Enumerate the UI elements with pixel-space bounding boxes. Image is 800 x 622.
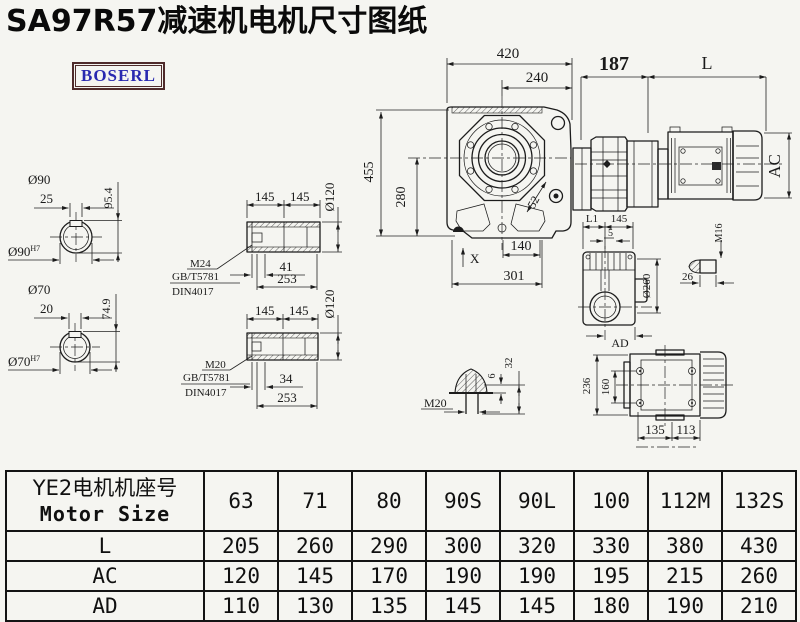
dim-side-l1: L1 [586, 213, 598, 225]
dim-shaft90-bore: Ø90H7 [8, 244, 40, 259]
header-motor-size: YE2电机机座号 Motor Size [6, 471, 204, 531]
dim-shaft90-key-height: 95.4 [101, 188, 115, 209]
shaft-section-70: Ø70 20 74.9 Ø70H7 [8, 282, 120, 374]
label-sleeve20-std1: GB/T5781 [183, 372, 230, 384]
table-row-AC: AC 120 145 170 190 190 195 215 260 [6, 561, 796, 591]
dim-shaft90-key-width: 25 [40, 191, 53, 206]
dim-front-motor-len: L [702, 53, 713, 73]
header-motor-size-en: Motor Size [7, 502, 203, 527]
row-label: AD [6, 591, 204, 621]
value-cell: 430 [722, 531, 796, 561]
dim-bolt-len: 32 [503, 358, 515, 369]
value-cell: 205 [204, 531, 278, 561]
dim-motor-ac: AC [765, 154, 784, 178]
value-cell: 300 [426, 531, 500, 561]
dim-front-height-inner: 280 [394, 187, 409, 208]
label-sleeve20-thread: M20 [205, 359, 226, 371]
dim-sleeve20-dia: Ø120 [322, 290, 337, 319]
dim-side-ad: AD [611, 336, 629, 350]
label-sleeve24-std2: DIN4017 [172, 286, 214, 298]
value-cell: 215 [648, 561, 722, 591]
value-cell: 290 [352, 531, 426, 561]
size-col-header: 100 [574, 471, 648, 531]
dim-side-boss-dia: Ø260 [641, 273, 653, 298]
dim-sleeve24-len-b: 145 [290, 189, 310, 204]
value-cell: 190 [500, 561, 574, 591]
size-col-header: 112M [648, 471, 722, 531]
label-sleeve20-std2: DIN4017 [185, 387, 227, 399]
header-motor-size-cn: YE2电机机座号 [7, 475, 203, 502]
dim-shaft70-dia: Ø70 [28, 282, 50, 297]
dimension-sheet: { "title": "SA97R57减速机电机尺寸图纸", "logo": {… [0, 0, 800, 613]
sleeve-detail-m20: 145 145 Ø120 M20 GB/T5781 DIN4017 34 253 [181, 290, 342, 409]
value-cell: 195 [574, 561, 648, 591]
brand-logo: BOSERL [72, 62, 165, 90]
value-cell: 260 [722, 561, 796, 591]
value-cell: 170 [352, 561, 426, 591]
label-front-foot-x: X [470, 251, 480, 266]
dim-front-flange: 52 [524, 194, 542, 211]
size-col-header: 132S [722, 471, 796, 531]
dim-side-len: 145 [611, 213, 628, 225]
value-cell: 120 [204, 561, 278, 591]
gearbox-side-view: L1 145 5 Ø260 AD M16 26 [578, 213, 734, 350]
page-title: SA97R57减速机电机尺寸图纸 [6, 0, 427, 40]
dim-rear-foot-b: 113 [676, 422, 695, 437]
dim-sleeve20-depth: 34 [280, 371, 294, 386]
value-cell: 210 [722, 591, 796, 621]
value-cell: 180 [574, 591, 648, 621]
dim-sleeve24-dia: Ø120 [322, 183, 337, 212]
motor-assembly: AC [573, 127, 792, 211]
dim-side-plug-len: 26 [682, 271, 694, 283]
value-cell: 380 [648, 531, 722, 561]
value-cell: 135 [352, 591, 426, 621]
gearbox-rear-view: 236 160 135 113 [581, 345, 734, 447]
size-col-header: 63 [204, 471, 278, 531]
dim-front-height: 455 [362, 162, 377, 183]
size-col-header: 80 [352, 471, 426, 531]
motor-size-table: YE2电机机座号 Motor Size 63 71 80 90S 90L 100… [5, 470, 797, 622]
dim-rear-bolt-pitch: 160 [600, 378, 612, 395]
sleeve-detail-m24: 145 145 Ø120 M24 GB/T5781 DIN4017 41 253 [170, 183, 342, 298]
value-cell: 320 [500, 531, 574, 561]
brand-logo-text: BOSERL [75, 65, 162, 87]
dim-rear-foot-a: 135 [645, 422, 665, 437]
dim-side-gap: 5 [608, 228, 613, 239]
value-cell: 260 [278, 531, 352, 561]
label-sleeve24-std1: GB/T5781 [172, 271, 219, 283]
label-side-plug-thread: M16 [714, 224, 725, 243]
value-cell: 110 [204, 591, 278, 621]
size-col-header: 90S [426, 471, 500, 531]
size-col-header: 71 [278, 471, 352, 531]
value-cell: 190 [426, 561, 500, 591]
dim-shaft70-bore: Ø70H7 [8, 354, 40, 369]
gearbox-front-view: 455 280 420 240 187 L 52 X 140 301 [362, 46, 766, 288]
value-cell: 130 [278, 591, 352, 621]
dim-bolt-head-h: 6 [487, 374, 498, 379]
dim-sleeve20-len-b: 145 [289, 303, 309, 318]
value-cell: 330 [574, 531, 648, 561]
row-label: AC [6, 561, 204, 591]
dim-front-adapter-len: 187 [599, 53, 629, 75]
dim-front-bottom: 301 [504, 269, 525, 284]
dim-shaft70-key-width: 20 [40, 301, 53, 316]
dim-shaft90-dia: Ø90 [28, 172, 50, 187]
fastener-detail-m20: M20 6 32 [421, 358, 525, 415]
dim-front-width-inner: 240 [526, 70, 549, 86]
size-col-header: 90L [500, 471, 574, 531]
value-cell: 145 [500, 591, 574, 621]
shaft-section-90: Ø90 25 95.4 Ø90H7 [8, 172, 122, 264]
dim-rear-height: 236 [581, 377, 593, 394]
label-bolt-thread: M20 [424, 396, 447, 410]
value-cell: 145 [426, 591, 500, 621]
dim-sleeve20-total: 253 [277, 390, 297, 405]
table-row-AD: AD 110 130 135 145 145 180 190 210 [6, 591, 796, 621]
value-cell: 190 [648, 591, 722, 621]
dim-front-bottom-inner: 140 [511, 239, 532, 254]
dim-sleeve24-total: 253 [277, 271, 297, 286]
table-row-L: L 205 260 290 300 320 330 380 430 [6, 531, 796, 561]
dim-sleeve20-len-a: 145 [255, 303, 275, 318]
dim-front-width: 420 [497, 46, 520, 62]
row-label: L [6, 531, 204, 561]
table-header-row: YE2电机机座号 Motor Size 63 71 80 90S 90L 100… [6, 471, 796, 531]
value-cell: 145 [278, 561, 352, 591]
label-sleeve24-thread: M24 [190, 258, 211, 270]
dim-shaft70-key-height: 74.9 [99, 299, 113, 320]
dim-sleeve24-len-a: 145 [255, 189, 275, 204]
